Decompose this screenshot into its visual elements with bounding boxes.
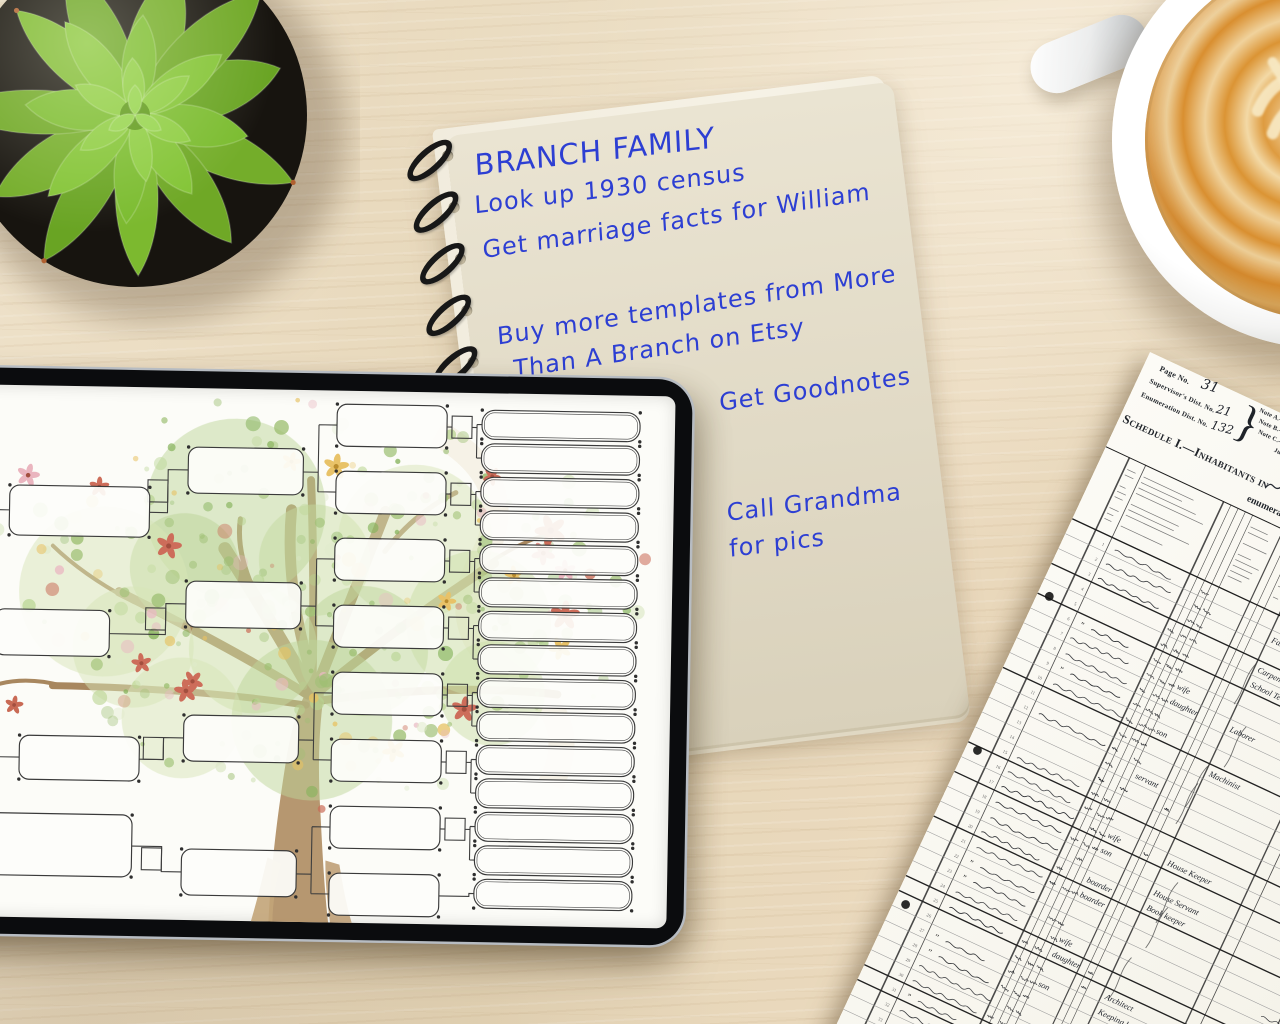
svg-text:17: 17 [988,778,995,785]
svg-text:21: 21 [960,838,967,845]
census-occupation-word: Keeping house [1096,1007,1146,1024]
tree-name-box [185,581,301,629]
svg-text:22: 22 [953,853,960,860]
svg-text:”: ” [961,873,968,883]
svg-text:3: 3 [1087,571,1092,577]
census-relationship-word: son [1099,846,1113,859]
svg-text:15: 15 [1002,749,1009,756]
tree-name-box [330,806,441,850]
census-page-no-value: 31 [1199,376,1221,397]
tree-name-box [181,849,297,897]
svg-text:7: 7 [1059,631,1064,637]
svg-text:”: ” [1079,620,1086,630]
svg-text:”: ” [905,992,912,1002]
tablet-device [0,366,693,945]
svg-text:24: 24 [940,883,947,890]
svg-text:29: 29 [905,957,912,964]
census-relationship-word: daughter [1051,950,1083,971]
svg-text:”: ” [926,947,933,957]
census-occupation-word: Laborer [1227,724,1257,744]
latte-rosetta [1145,0,1280,320]
svg-text:12: 12 [1023,704,1030,711]
svg-text:10: 10 [1037,674,1044,681]
tree-name-box [19,735,140,781]
svg-text:31: 31 [891,987,898,994]
svg-text:18: 18 [981,793,988,800]
succulent-plant [0,0,360,340]
family-tree-template [0,384,676,929]
latte-art [1145,0,1280,320]
svg-text:11: 11 [1030,689,1037,696]
svg-text:13: 13 [1016,719,1023,726]
svg-text:28: 28 [912,942,919,949]
tree-name-box [328,873,439,917]
census-relationship-word: son [1037,979,1051,992]
census-relationship-word: daughter [1168,697,1200,718]
census-supervisor-value: 21 [1215,402,1233,419]
tree-name-box [188,447,304,495]
tree-name-box [331,739,442,783]
tree-name-box [334,538,445,582]
svg-text:16: 16 [995,764,1002,771]
svg-text:19: 19 [974,808,981,815]
svg-text:27: 27 [919,927,926,934]
tree-name-box [183,715,299,763]
census-relationship-word: boarder [1078,890,1107,910]
census-relationship-word: boarder [1085,875,1114,895]
census-relationship-word: servant [1134,771,1161,790]
svg-text:”: ” [1058,665,1065,675]
census-occupation-word: School Teacher [1249,680,1280,710]
svg-text:33: 33 [877,1016,884,1023]
svg-text:26: 26 [926,912,933,919]
census-occupation-word: Farmer [1269,635,1280,655]
tablet-screen [0,384,676,929]
svg-text:9: 9 [1046,661,1051,667]
spiral-binding [432,75,884,130]
svg-text:5: 5 [1073,601,1078,607]
svg-text:20: 20 [967,823,974,830]
svg-text:30: 30 [898,972,905,979]
tree-name-box [337,404,448,448]
census-relationship-word: son [1155,727,1169,740]
desk-surface: BRANCH FAMILY Look up 1930 census Get ma… [0,0,1280,1024]
svg-text:1: 1 [1101,542,1106,548]
svg-text:32: 32 [884,1001,891,1008]
tree-name-box [9,485,150,537]
rosetta-leaves [1167,6,1280,320]
svg-text:14: 14 [1009,734,1016,741]
coffee-cup [1112,0,1280,348]
tree-name-box [335,471,446,515]
census-relationship-word: wife [1175,682,1192,696]
svg-text:6: 6 [1066,616,1071,622]
note-line: Call Grandma [726,477,902,526]
tree-name-box [0,609,110,657]
svg-text:”: ” [968,858,975,868]
svg-text:”: ” [933,932,940,942]
svg-text:8: 8 [1053,646,1058,652]
note-line: Get Goodnotes [718,362,911,417]
svg-text:2: 2 [1094,557,1099,563]
svg-text:4: 4 [1080,586,1085,592]
svg-text:25: 25 [933,897,940,904]
svg-text:23: 23 [946,868,953,875]
note-line: for pics [729,523,826,563]
tree-name-box [332,672,443,716]
tree-name-box [0,813,132,877]
tree-name-box [333,605,444,649]
